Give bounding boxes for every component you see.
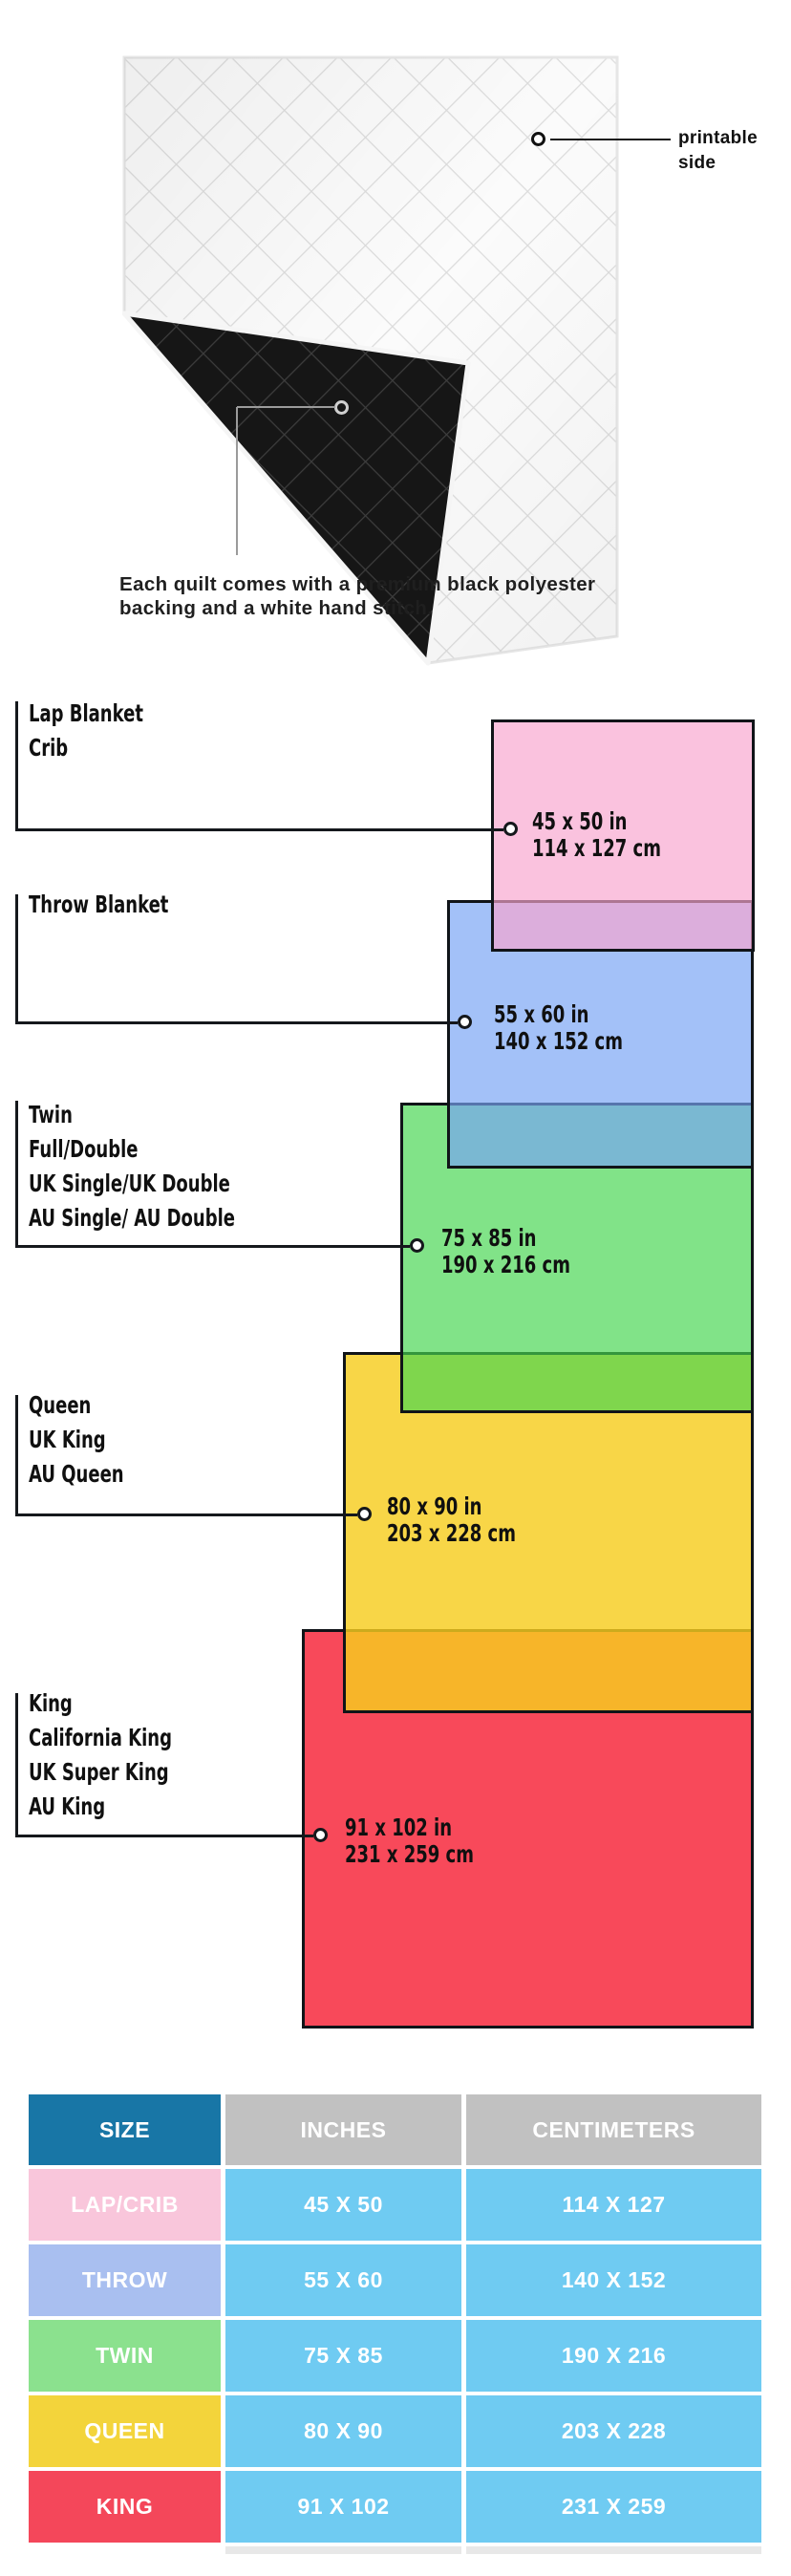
size-label-line: King — [29, 1686, 317, 1721]
connector-line-horizontal — [15, 1245, 410, 1248]
table-size-cell: THROW — [29, 2244, 221, 2316]
size-label-line: AU Queen — [29, 1457, 317, 1492]
size-inches: 55 x 60 in — [494, 1001, 623, 1028]
connector-dot-icon — [357, 1507, 372, 1521]
table-inches-cell: 80 X 90 — [225, 2395, 461, 2467]
backing-marker-icon — [334, 400, 349, 415]
table-shadow — [466, 2546, 761, 2554]
size-centimeters: 140 x 152 cm — [494, 1028, 623, 1055]
size-dimensions-twin: 75 x 85 in 190 x 216 cm — [441, 1225, 570, 1278]
size-label-line: Full/Double — [29, 1132, 317, 1167]
size-centimeters: 114 x 127 cm — [532, 835, 661, 862]
connector-line-vertical — [15, 1693, 18, 1835]
size-centimeters: 203 x 228 cm — [387, 1520, 516, 1547]
size-inches: 80 x 90 in — [387, 1493, 516, 1520]
printable-side-label: printable side — [678, 126, 783, 176]
printable-side-marker-icon — [531, 132, 545, 146]
backing-pointer-line-horizontal — [237, 406, 335, 408]
table-centimeters-cell: 190 X 216 — [466, 2320, 761, 2392]
size-dimensions-king: 91 x 102 in 231 x 259 cm — [345, 1814, 474, 1868]
table-inches-cell: 91 X 102 — [225, 2471, 461, 2543]
size-label-line: Queen — [29, 1388, 317, 1423]
quilt-caption: Each quilt comes with a premium black po… — [119, 572, 712, 620]
quilt-caption-line1: Each quilt comes with a premium black po… — [119, 572, 712, 596]
size-label-line: AU Single/ AU Double — [29, 1201, 317, 1235]
size-dimensions-queen: 80 x 90 in 203 x 228 cm — [387, 1493, 516, 1547]
connector-dot-icon — [503, 822, 518, 836]
table-header-inches: INCHES — [225, 2094, 461, 2165]
table-centimeters-cell: 203 X 228 — [466, 2395, 761, 2467]
size-centimeters: 190 x 216 cm — [441, 1252, 570, 1278]
size-dimensions-throw: 55 x 60 in 140 x 152 cm — [494, 1001, 623, 1055]
table-size-cell: TWIN — [29, 2320, 221, 2392]
size-label-line: Crib — [29, 731, 317, 765]
size-label-throw: Throw Blanket — [29, 888, 317, 922]
size-label-line: UK Single/UK Double — [29, 1167, 317, 1201]
size-label-line: UK King — [29, 1423, 317, 1457]
connector-line-vertical — [15, 701, 18, 829]
size-label-line: Throw Blanket — [29, 888, 317, 922]
connector-dot-icon — [313, 1828, 328, 1842]
table-inches-cell: 45 X 50 — [225, 2169, 461, 2241]
connector-dot-icon — [410, 1238, 424, 1253]
size-label-twin: Twin Full/Double UK Single/UK Double AU … — [29, 1098, 317, 1235]
size-label-king: King California King UK Super King AU Ki… — [29, 1686, 317, 1824]
table-centimeters-cell: 140 X 152 — [466, 2244, 761, 2316]
table-inches-cell: 55 X 60 — [225, 2244, 461, 2316]
connector-line-horizontal — [15, 828, 503, 831]
size-label-line: Twin — [29, 1098, 317, 1132]
size-inches: 75 x 85 in — [441, 1225, 570, 1252]
connector-line-vertical — [15, 1101, 18, 1246]
table-header-centimeters: CENTIMETERS — [466, 2094, 761, 2165]
table-centimeters-cell: 114 X 127 — [466, 2169, 761, 2241]
size-label-line: AU King — [29, 1790, 317, 1824]
connector-line-vertical — [15, 1395, 18, 1514]
size-table: SIZE INCHES CENTIMETERS LAP/CRIB 45 X 50… — [29, 2094, 761, 2543]
table-header-size: SIZE — [29, 2094, 221, 2165]
table-size-cell: KING — [29, 2471, 221, 2543]
size-centimeters: 231 x 259 cm — [345, 1841, 474, 1868]
table-size-cell: QUEEN — [29, 2395, 221, 2467]
size-label-line: UK Super King — [29, 1755, 317, 1790]
size-inches: 45 x 50 in — [532, 808, 661, 835]
printable-side-pointer-line — [550, 139, 671, 140]
table-inches-cell: 75 X 85 — [225, 2320, 461, 2392]
connector-line-vertical — [15, 894, 18, 1022]
infographic-page: printable side Each quilt comes with a p… — [0, 0, 791, 2576]
size-label-queen: Queen UK King AU Queen — [29, 1388, 317, 1492]
size-dimensions-lap-crib: 45 x 50 in 114 x 127 cm — [532, 808, 661, 862]
table-centimeters-cell: 231 X 259 — [466, 2471, 761, 2543]
quilt-caption-line2: backing and a white hand stitch. — [119, 596, 712, 620]
table-size-cell: LAP/CRIB — [29, 2169, 221, 2241]
connector-dot-icon — [458, 1015, 472, 1029]
size-inches: 91 x 102 in — [345, 1814, 474, 1841]
connector-line-horizontal — [15, 1021, 458, 1024]
connector-line-horizontal — [15, 1835, 313, 1837]
backing-pointer-line-vertical — [236, 407, 238, 555]
connector-line-horizontal — [15, 1513, 357, 1516]
size-label-line: Lap Blanket — [29, 697, 317, 731]
size-label-lap-crib: Lap Blanket Crib — [29, 697, 317, 765]
size-label-line: California King — [29, 1721, 317, 1755]
table-shadow — [225, 2546, 461, 2554]
